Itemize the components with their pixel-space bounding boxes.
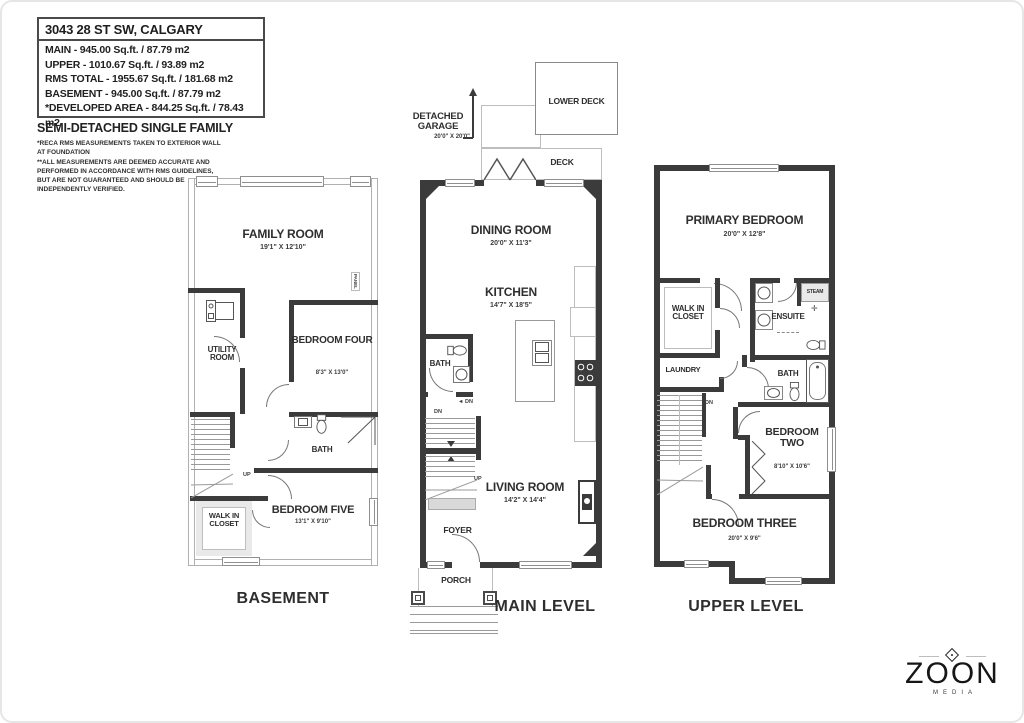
room-label-walk-in-closet: WALK IN CLOSET bbox=[198, 512, 250, 528]
up-label: UP bbox=[243, 472, 251, 478]
floorplan-canvas: 3043 28 ST SW, CALGARY MAIN - 945.00 Sq.… bbox=[0, 0, 1024, 723]
french-doors bbox=[484, 158, 536, 181]
toilet-icon bbox=[447, 344, 468, 357]
room-label-utility: UTILITY ROOM bbox=[200, 346, 244, 363]
brand-subtext: MEDIA bbox=[895, 690, 1010, 696]
upper-plan: STEAM ✛ bbox=[654, 165, 835, 587]
main-plan: BATH ◄ DN DN UP DINING ROOM 20'0" X 11'3… bbox=[420, 180, 602, 568]
door-arc bbox=[268, 440, 289, 461]
wall bbox=[190, 412, 230, 417]
toilet-icon bbox=[315, 414, 328, 435]
room-dims-bedroom-two: 8'10" X 10'6" bbox=[752, 464, 832, 470]
wall bbox=[715, 278, 720, 308]
wall bbox=[188, 288, 245, 293]
wall bbox=[420, 392, 428, 397]
dn-label: DN bbox=[434, 409, 442, 415]
address: 3043 28 ST SW, CALGARY bbox=[39, 19, 263, 41]
window bbox=[765, 577, 802, 585]
basement-plan-label: BASEMENT bbox=[188, 590, 378, 608]
wall bbox=[188, 559, 378, 566]
island-sink-icon bbox=[532, 340, 552, 366]
tub-icon bbox=[806, 359, 829, 403]
room-label-bedroom-five: BEDROOM FIVE bbox=[254, 505, 372, 516]
window bbox=[350, 176, 371, 187]
wall bbox=[742, 355, 747, 367]
info-box: 3043 28 ST SW, CALGARY MAIN - 945.00 Sq.… bbox=[37, 17, 265, 118]
area-line: MAIN - 945.00 Sq.ft. / 87.79 m2 bbox=[45, 43, 257, 58]
disclaimer-line: **ALL MEASUREMENTS ARE DEEMED ACCURATE A… bbox=[37, 158, 221, 167]
room-label-bath: BATH bbox=[304, 446, 340, 454]
stairs bbox=[191, 419, 230, 473]
room-label-laundry: LAUNDRY bbox=[658, 366, 708, 374]
room-dims-family-room: 19'1" X 12'10" bbox=[198, 244, 368, 251]
wall bbox=[188, 178, 195, 566]
window bbox=[445, 179, 475, 187]
arrow-icon bbox=[447, 441, 455, 447]
room-label-primary-bedroom: PRIMARY BEDROOM bbox=[654, 214, 835, 226]
fridge bbox=[570, 307, 596, 337]
stairs bbox=[425, 456, 475, 480]
wall bbox=[420, 180, 426, 568]
room-label-walk-in-closet: WALK IN CLOSET bbox=[662, 305, 714, 322]
wall bbox=[420, 334, 472, 339]
room-dims-primary-bedroom: 20'0" X 12'8" bbox=[654, 231, 835, 238]
room-dims-bedroom-four: 8'3" X 13'0" bbox=[287, 370, 377, 376]
shower-icon bbox=[340, 416, 376, 446]
logo-flourish bbox=[966, 656, 986, 657]
wall bbox=[240, 288, 245, 338]
room-label-bedroom-four: BEDROOM FOUR bbox=[287, 336, 377, 346]
upper-plan-label: UPPER LEVEL bbox=[663, 598, 829, 616]
room-label-family-room: FAMILY ROOM bbox=[198, 228, 368, 240]
room-label-porch: PORCH bbox=[421, 576, 491, 585]
garage-arrow-line bbox=[472, 96, 474, 138]
room-label-lower-deck: LOWER DECK bbox=[536, 97, 617, 106]
shower-glass bbox=[777, 332, 799, 333]
zoon-logo: ZOON MEDIA bbox=[895, 648, 1010, 712]
door-arc bbox=[720, 308, 740, 328]
window bbox=[240, 176, 324, 187]
room-dims-bedroom-five: 13'1" X 9'10" bbox=[254, 519, 372, 525]
disclaimer-line: *RECA RMS MEASUREMENTS TAKEN TO EXTERIOR… bbox=[37, 139, 221, 148]
panel-label: PANEL bbox=[351, 272, 360, 291]
wall bbox=[654, 353, 720, 358]
garage-annotation: DETACHED GARAGE 20'0" X 20'0" bbox=[406, 112, 470, 140]
logo-flourish bbox=[919, 656, 939, 657]
garage-arrow-icon bbox=[469, 88, 477, 96]
garage-arrow-line bbox=[463, 137, 473, 139]
wall bbox=[596, 180, 602, 568]
room-label-kitchen: KITCHEN bbox=[420, 286, 602, 298]
wall bbox=[456, 392, 473, 397]
room-dims-detached-garage: 20'0" X 20'0" bbox=[406, 134, 470, 140]
sink-icon bbox=[764, 386, 783, 400]
toilet-icon bbox=[788, 382, 801, 402]
dn-label: ◄ DN bbox=[458, 399, 473, 405]
window bbox=[222, 557, 260, 566]
brand-text: ZOON bbox=[895, 659, 1010, 689]
wall bbox=[230, 412, 235, 448]
room-label-steam: STEAM bbox=[802, 290, 828, 295]
corner-brace bbox=[583, 543, 596, 556]
room-label-living-room: LIVING ROOM bbox=[460, 481, 590, 493]
stair-divider bbox=[425, 448, 478, 454]
room-label-dining-room: DINING ROOM bbox=[420, 224, 602, 236]
wall bbox=[739, 494, 835, 499]
sink-icon bbox=[294, 416, 312, 428]
front-door-opening bbox=[452, 562, 480, 568]
stair-divider bbox=[679, 395, 680, 465]
lower-deck: LOWER DECK bbox=[535, 62, 618, 135]
toilet-icon bbox=[806, 339, 826, 352]
wall bbox=[654, 278, 700, 283]
wall bbox=[719, 377, 724, 392]
disclaimer-line: PERFORMED IN ACCORDANCE WITH RMS GUIDELI… bbox=[37, 167, 221, 176]
window bbox=[427, 561, 445, 569]
corner-brace bbox=[426, 186, 439, 199]
main-plan-label: MAIN LEVEL bbox=[462, 598, 628, 616]
stove-icon bbox=[575, 360, 596, 386]
door-arc bbox=[429, 368, 453, 392]
stairs-winder bbox=[191, 472, 233, 498]
window bbox=[519, 561, 572, 569]
disclaimer-line: AT FOUNDATION bbox=[37, 148, 221, 157]
deck-stairs bbox=[481, 105, 541, 148]
dn-label: DN bbox=[705, 400, 713, 406]
room-label-bath: BATH bbox=[426, 360, 454, 368]
shower-head-icon: ✛ bbox=[811, 304, 818, 313]
wall bbox=[829, 165, 835, 584]
room-label-ensuite: ENSUITE bbox=[766, 313, 810, 321]
room-dims-dining-room: 20'0" X 11'3" bbox=[420, 240, 602, 247]
window bbox=[196, 176, 218, 187]
sink-icon bbox=[453, 366, 470, 383]
wall bbox=[476, 416, 481, 460]
sink-icon bbox=[755, 283, 773, 303]
room-dims-bedroom-three: 20'0" X 9'6" bbox=[672, 536, 817, 542]
door-arc bbox=[720, 361, 738, 379]
wall bbox=[240, 368, 245, 414]
area-line: RMS TOTAL - 1955.67 Sq.ft. / 181.68 m2 bbox=[45, 72, 257, 87]
wall bbox=[289, 300, 378, 305]
window bbox=[709, 164, 779, 172]
stairs-winder bbox=[657, 465, 703, 495]
wall bbox=[420, 562, 602, 568]
steam-shower: STEAM bbox=[801, 283, 829, 302]
door-arc bbox=[266, 384, 289, 407]
door-arc bbox=[268, 475, 292, 499]
room-dims-kitchen: 14'7" X 18'5" bbox=[420, 302, 602, 309]
washer-icon bbox=[206, 300, 234, 322]
door-arc bbox=[778, 283, 797, 302]
room-label-bath: BATH bbox=[770, 370, 806, 378]
room-label-foyer: FOYER bbox=[430, 526, 485, 535]
wall bbox=[254, 468, 378, 473]
window bbox=[684, 560, 709, 568]
corner-brace bbox=[583, 186, 596, 199]
room-dims-living-room: 14'2" X 14'4" bbox=[460, 497, 590, 504]
property-type: SEMI-DETACHED SINGLE FAMILY bbox=[37, 121, 233, 135]
room-label-bedroom-three: BEDROOM THREE bbox=[672, 517, 817, 529]
area-line: BASEMENT - 945.00 Sq.ft. / 87.79 m2 bbox=[45, 87, 257, 102]
wall bbox=[654, 387, 724, 392]
basement-plan: UP FAMILY ROOM 19'1" X 12'1 bbox=[188, 178, 378, 566]
room-label-detached-garage: DETACHED GARAGE bbox=[406, 112, 470, 132]
door-arc bbox=[452, 534, 480, 562]
area-line: UPPER - 1010.67 Sq.ft. / 93.89 m2 bbox=[45, 58, 257, 73]
porch-post bbox=[411, 591, 425, 605]
room-label-bedroom-two: BEDROOM TWO bbox=[752, 427, 832, 449]
window bbox=[544, 179, 584, 187]
